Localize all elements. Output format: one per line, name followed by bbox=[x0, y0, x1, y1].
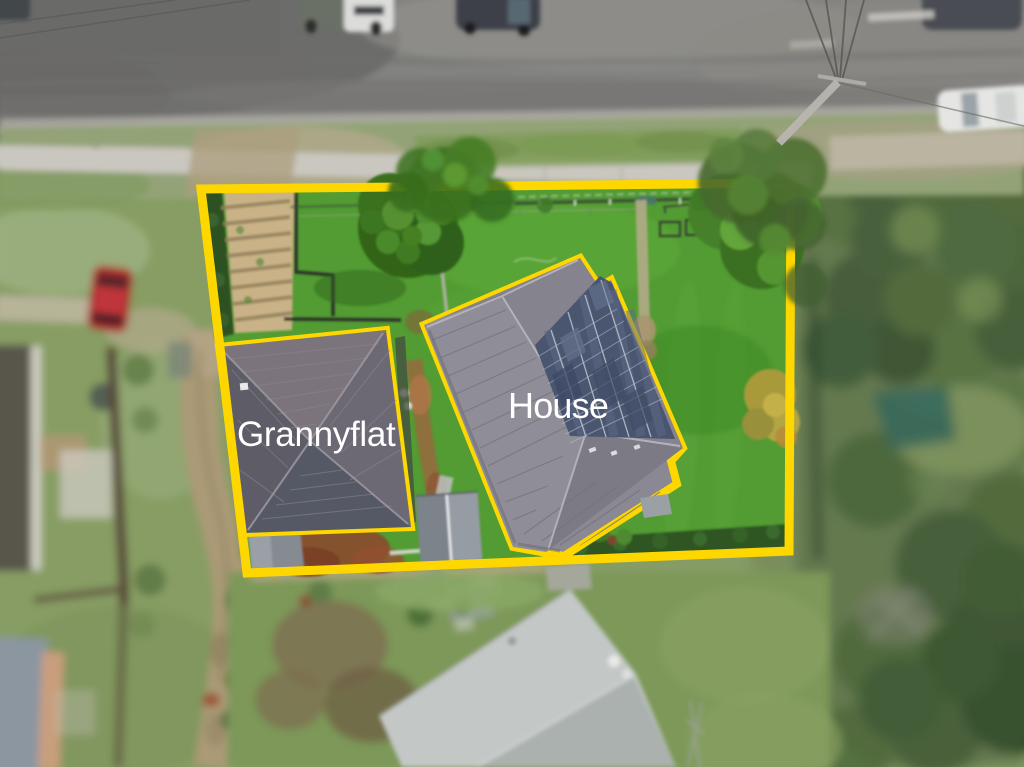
svg-text:Grannyflat: Grannyflat bbox=[237, 415, 396, 454]
svg-text:House: House bbox=[508, 385, 608, 426]
